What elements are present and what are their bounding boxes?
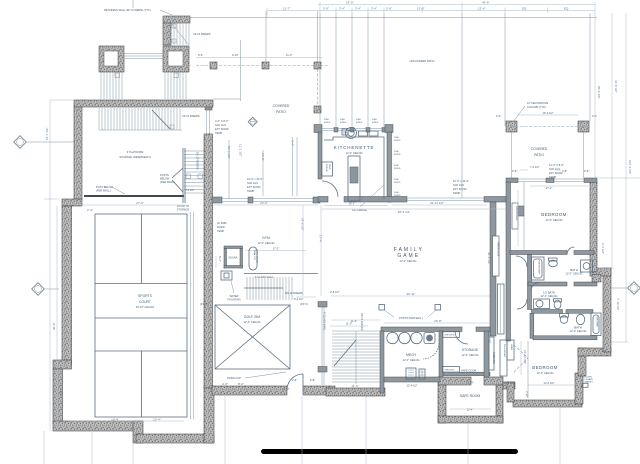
svg-text:TEMP: TEMP bbox=[549, 175, 556, 179]
svg-text:11'-1 1/2": 11'-1 1/2" bbox=[239, 144, 243, 156]
svg-text:TEMP: TEMP bbox=[217, 229, 224, 233]
svg-text:10'-3 1/2": 10'-3 1/2" bbox=[227, 146, 231, 159]
svg-text:KITCHENETTE: KITCHENETTE bbox=[334, 145, 375, 150]
svg-text:13'-4 1/2": 13'-4 1/2" bbox=[544, 381, 555, 385]
svg-text:4'-0" X 8'-0": 4'-0" X 8'-0" bbox=[215, 119, 229, 123]
svg-text:12'-0" CEILNG: 12'-0" CEILNG bbox=[570, 329, 587, 333]
svg-text:3040: 3040 bbox=[394, 179, 400, 181]
svg-text:23'-10 1/2": 23'-10 1/2" bbox=[523, 350, 527, 364]
svg-text:COVERED: COVERED bbox=[531, 147, 548, 151]
svg-text:GOLF SIM: GOLF SIM bbox=[244, 315, 260, 319]
svg-text:12'-4 1/2": 12'-4 1/2" bbox=[407, 384, 418, 388]
svg-text:POST BELOW: POST BELOW bbox=[96, 185, 114, 189]
svg-text:FIXED: FIXED bbox=[394, 182, 401, 184]
svg-text:MECH: MECH bbox=[406, 353, 417, 357]
svg-text:(3'4"C): (3'4"C) bbox=[300, 302, 308, 306]
svg-text:3080: 3080 bbox=[324, 119, 330, 121]
svg-text:9'-10": 9'-10" bbox=[232, 53, 239, 57]
svg-text:12'-6": 12'-6" bbox=[478, 6, 486, 10]
svg-text:PATIO: PATIO bbox=[276, 110, 286, 114]
svg-text:24'-6 1/2": 24'-6 1/2" bbox=[301, 218, 305, 231]
svg-text:16'-2": 16'-2" bbox=[349, 202, 356, 206]
svg-text:3040: 3040 bbox=[394, 137, 400, 139]
svg-text:UP 15 RISERS: UP 15 RISERS bbox=[360, 313, 364, 331]
svg-text:16'-0" x 10'-0": 16'-0" x 10'-0" bbox=[453, 179, 469, 183]
svg-text:PNLD: PNLD bbox=[328, 164, 330, 170]
svg-text:12'-0" X 8'-0": 12'-0" X 8'-0" bbox=[549, 163, 564, 167]
svg-text:2'-6": 2'-6" bbox=[386, 6, 392, 10]
svg-text:SLD GLS: SLD GLS bbox=[453, 183, 464, 187]
svg-text:SAFE ROOM: SAFE ROOM bbox=[460, 394, 481, 398]
svg-text:30'-8": 30'-8" bbox=[52, 322, 56, 330]
svg-text:11'-0": 11'-0" bbox=[346, 322, 352, 326]
svg-text:FIREPLACE: FIREPLACE bbox=[515, 206, 519, 221]
svg-text:DOOR TO: DOOR TO bbox=[177, 204, 189, 208]
svg-text:8'-0": 8'-0" bbox=[238, 382, 244, 386]
svg-text:7'-9 1/2": 7'-9 1/2" bbox=[505, 381, 515, 385]
svg-text:2'-4 1/2": 2'-4 1/2" bbox=[185, 188, 195, 192]
svg-text:3040: 3040 bbox=[394, 165, 400, 167]
svg-text:EXT DOOR: EXT DOOR bbox=[215, 127, 229, 131]
svg-text:2'-6": 2'-6" bbox=[323, 6, 329, 10]
svg-text:SOLD-PLUNG: SOLD-PLUNG bbox=[256, 250, 258, 264]
svg-text:SLD GLS: SLD GLS bbox=[247, 181, 258, 185]
svg-text:27'-6": 27'-6" bbox=[136, 201, 144, 205]
svg-text:12'-0" CEILNG: 12'-0" CEILNG bbox=[546, 218, 563, 222]
svg-text:BELOW: BELOW bbox=[160, 177, 170, 181]
svg-text:COVERED: COVERED bbox=[273, 104, 290, 108]
svg-text:1/2 BATH: 1/2 BATH bbox=[543, 291, 555, 295]
svg-text:WATER: WATER bbox=[229, 294, 238, 298]
svg-text:SLD GLS: SLD GLS bbox=[215, 123, 226, 127]
svg-text:6' PLATFORM: 6' PLATFORM bbox=[127, 150, 144, 154]
svg-text:4'-0": 4'-0" bbox=[496, 114, 501, 118]
svg-text:12'-4 1/2": 12'-4 1/2" bbox=[488, 332, 492, 343]
svg-text:3080: 3080 bbox=[356, 119, 362, 121]
svg-text:SHELVES: SHELVES bbox=[445, 370, 455, 372]
svg-text:10'-4": 10'-4" bbox=[59, 387, 63, 395]
svg-text:TUB/SHOWER: TUB/SHOWER bbox=[538, 260, 540, 275]
svg-text:FRIDGE: FRIDGE bbox=[325, 164, 327, 172]
svg-text:16'-0 1/2": 16'-0 1/2" bbox=[543, 111, 554, 115]
svg-text:SPORTS: SPORTS bbox=[138, 294, 153, 298]
svg-text:FIXED: FIXED bbox=[394, 140, 401, 142]
svg-text:12'-0" CEILNG: 12'-0" CEILNG bbox=[403, 358, 420, 362]
svg-text:FIXED: FIXED bbox=[217, 225, 225, 229]
svg-text:BEDROOM: BEDROOM bbox=[541, 212, 567, 217]
svg-text:36'-11": 36'-11" bbox=[406, 292, 415, 296]
svg-text:3'-4": 3'-4" bbox=[339, 6, 345, 10]
svg-text:17'-2": 17'-2" bbox=[273, 247, 280, 251]
svg-text:31'-8 1/2": 31'-8 1/2" bbox=[614, 80, 618, 93]
svg-text:RETAINING WALL (BY OTHERS) (TY: RETAINING WALL (BY OTHERS) (TYP.) bbox=[104, 8, 151, 12]
svg-text:3'-4": 3'-4" bbox=[291, 140, 295, 146]
svg-text:STORAGE: STORAGE bbox=[177, 208, 190, 212]
svg-text:COURT: COURT bbox=[139, 300, 151, 304]
svg-text:BATH: BATH bbox=[570, 268, 578, 272]
svg-text:101'-6 1/2": 101'-6 1/2" bbox=[628, 160, 632, 174]
svg-text:21'-7 1/2": 21'-7 1/2" bbox=[45, 127, 49, 140]
svg-text:2'-6 1/2": 2'-6 1/2" bbox=[330, 290, 340, 294]
svg-text:17'-2": 17'-2" bbox=[546, 186, 553, 190]
svg-text:FIXED: FIXED bbox=[394, 195, 401, 197]
svg-text:FOUNTAIN: FOUNTAIN bbox=[227, 298, 240, 302]
svg-text:(2) 5080: (2) 5080 bbox=[217, 221, 227, 225]
svg-text:2'-4": 2'-4" bbox=[87, 208, 93, 212]
svg-text:12'-0" CEILNG: 12'-0" CEILNG bbox=[258, 241, 275, 245]
svg-text:11'-6": 11'-6" bbox=[351, 384, 358, 388]
svg-text:6'-8": 6'-8" bbox=[310, 378, 315, 382]
svg-text:TEMP: TEMP bbox=[247, 189, 254, 193]
svg-text:STORAGE UNDERNEATH: STORAGE UNDERNEATH bbox=[119, 155, 150, 159]
svg-text:SAFE DOOR: SAFE DOOR bbox=[461, 369, 476, 373]
svg-text:11'-2": 11'-2" bbox=[286, 53, 292, 57]
svg-text:BEDROOM: BEDROOM bbox=[532, 365, 558, 370]
svg-text:12'-0" CEILNG: 12'-0" CEILNG bbox=[537, 371, 554, 375]
svg-text:2'-4 1/2": 2'-4 1/2" bbox=[601, 243, 605, 254]
svg-text:4'-8": 4'-8" bbox=[562, 169, 567, 173]
svg-text:CABINET: CABINET bbox=[584, 381, 594, 384]
svg-text:TEMP: TEMP bbox=[453, 191, 460, 195]
svg-text:UP 21 RISERS: UP 21 RISERS bbox=[193, 32, 211, 36]
svg-text:STORAGE: STORAGE bbox=[462, 348, 479, 352]
svg-text:11'-0": 11'-0" bbox=[282, 387, 289, 391]
svg-text:SLD GLS: SLD GLS bbox=[549, 167, 560, 171]
svg-text:SAUNA: SAUNA bbox=[229, 256, 238, 260]
svg-text:2'-8": 2'-8" bbox=[584, 169, 589, 173]
svg-text:4'-0": 4'-0" bbox=[592, 114, 597, 118]
svg-text:TEMP: TEMP bbox=[215, 131, 222, 135]
svg-text:(PER WALL): (PER WALL) bbox=[160, 180, 175, 184]
svg-text:3'-4": 3'-4" bbox=[355, 6, 361, 10]
svg-text:EQ: EQ bbox=[564, 6, 569, 10]
svg-text:9'-0": 9'-0" bbox=[198, 53, 203, 57]
svg-text:12" DECORATIVE: 12" DECORATIVE bbox=[527, 101, 548, 105]
svg-text:FULL HEIGHT: FULL HEIGHT bbox=[503, 344, 505, 358]
svg-text:FIXED: FIXED bbox=[356, 122, 363, 124]
svg-text:UNCOVERED PATIO: UNCOVERED PATIO bbox=[410, 59, 435, 63]
svg-text:10'-0" x 10'-0": 10'-0" x 10'-0" bbox=[247, 177, 263, 181]
svg-text:U/C FRIDGE: U/C FRIDGE bbox=[352, 208, 367, 212]
svg-text:12'-4": 12'-4" bbox=[467, 408, 474, 412]
svg-text:G A M E: G A M E bbox=[397, 253, 418, 259]
svg-text:FIXED: FIXED bbox=[324, 122, 331, 124]
svg-text:13'-6": 13'-6" bbox=[261, 153, 265, 161]
svg-text:40'-5 1/2": 40'-5 1/2" bbox=[487, 252, 491, 265]
svg-text:12'-0" CEILNG: 12'-0" CEILNG bbox=[400, 259, 417, 263]
svg-text:12'-0" CEILNG: 12'-0" CEILNG bbox=[462, 353, 479, 357]
svg-text:16'-0": 16'-0" bbox=[346, 1, 354, 5]
svg-text:13'-0": 13'-0" bbox=[417, 6, 425, 10]
svg-text:FIXED: FIXED bbox=[394, 154, 401, 156]
svg-text:3'-4": 3'-4" bbox=[371, 6, 377, 10]
svg-text:22'-11 1/2": 22'-11 1/2" bbox=[430, 201, 444, 205]
svg-text:POSTS: POSTS bbox=[160, 173, 169, 177]
svg-text:EXT DOOR: EXT DOOR bbox=[549, 171, 563, 175]
svg-text:12'-0" CEILNG: 12'-0" CEILNG bbox=[541, 294, 558, 298]
svg-text:POSTS (PER ENG.): POSTS (PER ENG.) bbox=[399, 316, 423, 320]
svg-text:7'-10 1/2": 7'-10 1/2" bbox=[616, 298, 620, 311]
svg-text:3080: 3080 bbox=[372, 119, 378, 121]
svg-text:DN 10 RISERS: DN 10 RISERS bbox=[285, 291, 303, 295]
svg-text:8'-2": 8'-2" bbox=[218, 256, 222, 262]
svg-text:DN 10 RISERS: DN 10 RISERS bbox=[196, 152, 200, 170]
svg-text:12'-0" CEILNG: 12'-0" CEILNG bbox=[566, 272, 583, 276]
svg-text:TUB/SHWR: TUB/SHWR bbox=[596, 316, 598, 328]
svg-text:PORCH UP: PORCH UP bbox=[227, 376, 241, 380]
svg-text:FIREPLACE: FIREPLACE bbox=[497, 242, 501, 257]
svg-text:22'-6": 22'-6" bbox=[260, 201, 268, 205]
svg-text:3040: 3040 bbox=[394, 151, 400, 153]
svg-text:2'-8": 2'-8" bbox=[512, 169, 517, 173]
svg-text:20'-6 1/2": 20'-6 1/2" bbox=[597, 86, 601, 99]
svg-text:43'-6": 43'-6" bbox=[482, 1, 490, 5]
svg-text:PATIO: PATIO bbox=[534, 153, 544, 157]
svg-text:17'-4": 17'-4" bbox=[319, 235, 323, 243]
svg-text:4' GLASS WALL: 4' GLASS WALL bbox=[323, 312, 327, 332]
svg-text:EQ: EQ bbox=[522, 6, 527, 10]
svg-text:6'-0 1/2": 6'-0 1/2" bbox=[294, 297, 304, 301]
svg-text:12'-0" CEILNG: 12'-0" CEILNG bbox=[346, 151, 363, 155]
svg-text:7'-4 1/2": 7'-4 1/2" bbox=[530, 165, 540, 169]
svg-text:LINEN: LINEN bbox=[510, 344, 512, 351]
svg-text:FIXED: FIXED bbox=[372, 122, 379, 124]
svg-text:BATH: BATH bbox=[574, 326, 582, 330]
svg-text:(PER WALL): (PER WALL) bbox=[96, 189, 111, 193]
svg-text:GYM: GYM bbox=[262, 236, 270, 240]
svg-text:2'-10": 2'-10" bbox=[525, 391, 529, 398]
svg-text:(3'4"C): (3'4"C) bbox=[200, 302, 208, 306]
svg-text:COLUMN (TYP.): COLUMN (TYP.) bbox=[527, 105, 546, 109]
svg-text:26'-8": 26'-8" bbox=[434, 319, 442, 323]
svg-text:2'-6": 2'-6" bbox=[292, 378, 297, 382]
svg-text:3080: 3080 bbox=[340, 119, 346, 121]
svg-text:EXT DOOR: EXT DOOR bbox=[453, 187, 467, 191]
svg-text:3040: 3040 bbox=[394, 192, 400, 194]
svg-text:11'-7": 11'-7" bbox=[283, 6, 290, 10]
svg-text:12'-0" CEILNG: 12'-0" CEILNG bbox=[244, 320, 261, 324]
svg-text:38'-6 1/2": 38'-6 1/2" bbox=[398, 210, 411, 214]
svg-text:4'-8": 4'-8" bbox=[222, 382, 228, 386]
svg-text:17'-4": 17'-4" bbox=[466, 381, 474, 385]
svg-text:FIXED: FIXED bbox=[340, 122, 347, 124]
svg-text:SWIM 7-IN: SWIM 7-IN bbox=[253, 250, 255, 261]
svg-text:UP 21 RISERS: UP 21 RISERS bbox=[182, 114, 200, 118]
svg-text:FIXED: FIXED bbox=[394, 168, 401, 170]
svg-text:EXT DOOR: EXT DOOR bbox=[247, 185, 261, 189]
svg-text:SHELVES: SHELVES bbox=[492, 352, 496, 364]
svg-text:SHELVES: SHELVES bbox=[445, 335, 455, 337]
svg-text:16'-10" CEILNG: 16'-10" CEILNG bbox=[136, 305, 154, 309]
